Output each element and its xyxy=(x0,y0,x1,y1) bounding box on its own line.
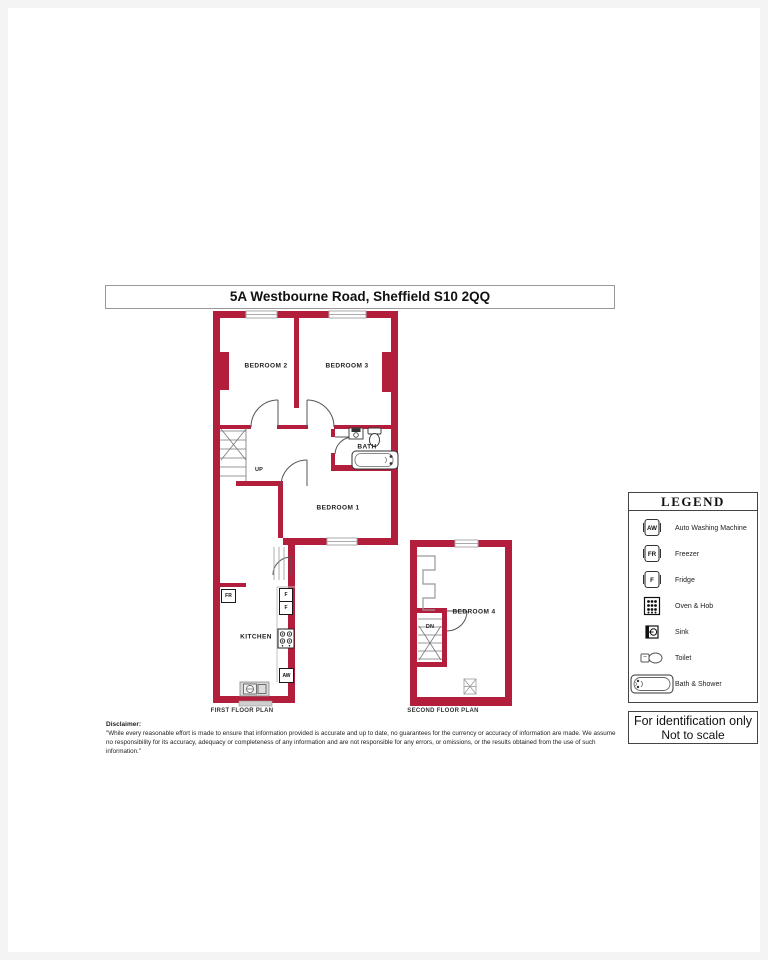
svg-text:AW: AW xyxy=(647,525,657,532)
legend-label: Freezer xyxy=(675,551,699,558)
second-floor-caption: SECOND FLOOR PLAN xyxy=(407,708,478,714)
identification-line1: For identification only xyxy=(629,714,757,728)
room-label-bedroom1: BEDROOM 1 xyxy=(317,505,360,512)
fridge-tag-top: F xyxy=(279,588,293,602)
second-floor-walls xyxy=(410,540,512,706)
rooflight-icon xyxy=(464,679,476,694)
room-label-kitchen: KITCHEN xyxy=(240,634,272,641)
room-label-bedroom2: BEDROOM 2 xyxy=(245,363,288,370)
legend-label: Auto Washing Machine xyxy=(675,525,747,532)
legend-row-freezer: FR Freezer xyxy=(629,541,757,567)
identification-box: For identification only Not to scale xyxy=(628,711,758,744)
sink-icon xyxy=(629,625,675,639)
washing-machine-icon: AW xyxy=(629,518,675,538)
freezer-icon: FR xyxy=(629,544,675,564)
legend-row-oven-hob: Oven & Hob xyxy=(629,593,757,619)
kitchen-sink-plan-icon xyxy=(240,682,269,696)
legend-row-fridge: F Fridge xyxy=(629,567,757,593)
legend-row-toilet: Toilet xyxy=(629,645,757,671)
staircase-up-icon xyxy=(220,428,246,481)
stairs-up-label: UP xyxy=(255,467,263,473)
legend-label: Sink xyxy=(675,629,689,636)
disclaimer: Disclaimer: "While every reasonable effo… xyxy=(106,721,622,756)
svg-text:FR: FR xyxy=(648,551,657,558)
eaves-line xyxy=(417,556,435,610)
legend-label: Bath & Shower xyxy=(675,681,722,688)
svg-text:F: F xyxy=(650,577,654,584)
washing-machine-tag: AW xyxy=(279,668,294,683)
room-label-bath: BATH xyxy=(357,444,376,451)
freezer-tag: FR xyxy=(221,589,236,603)
toilet-icon xyxy=(629,651,675,665)
fridge-tag-bottom: F xyxy=(279,601,293,615)
oven-hob-icon xyxy=(629,596,675,616)
identification-line2: Not to scale xyxy=(629,728,757,742)
legend-row-bath-shower: Bath & Shower xyxy=(629,671,757,697)
second-floor-windows xyxy=(455,540,478,547)
disclaimer-heading: Disclaimer: xyxy=(106,721,622,728)
legend-row-sink: Sink xyxy=(629,619,757,645)
legend-box: LEGEND AW Auto Washing Machine xyxy=(628,492,758,703)
room-label-bedroom4: BEDROOM 4 xyxy=(453,609,496,616)
floor-plan-drawing xyxy=(0,0,768,960)
legend-label: Oven & Hob xyxy=(675,603,713,610)
stairs-down-label: DN xyxy=(426,624,434,630)
legend-label: Fridge xyxy=(675,577,695,584)
fridge-icon: F xyxy=(629,570,675,590)
legend-row-washing-machine: AW Auto Washing Machine xyxy=(629,515,757,541)
legend-rows: AW Auto Washing Machine FR Freezer xyxy=(629,511,757,702)
bath-shower-icon xyxy=(629,673,675,695)
legend-title: LEGEND xyxy=(629,493,757,511)
staircase-down-to-ground-icon xyxy=(274,547,284,580)
oven-hob-plan-icon xyxy=(278,629,294,648)
room-label-bedroom3: BEDROOM 3 xyxy=(326,363,369,370)
bathroom-sink-icon xyxy=(349,428,363,439)
first-floor-caption: FIRST FLOOR PLAN xyxy=(211,708,274,714)
bathtub-plan-icon xyxy=(352,451,398,469)
floorplan-page: 5A Westbourne Road, Sheffield S10 2QQ xyxy=(0,0,768,960)
first-floor-walls xyxy=(213,311,398,703)
disclaimer-body: "While every reasonable effort is made t… xyxy=(106,729,622,756)
legend-label: Toilet xyxy=(675,655,691,662)
